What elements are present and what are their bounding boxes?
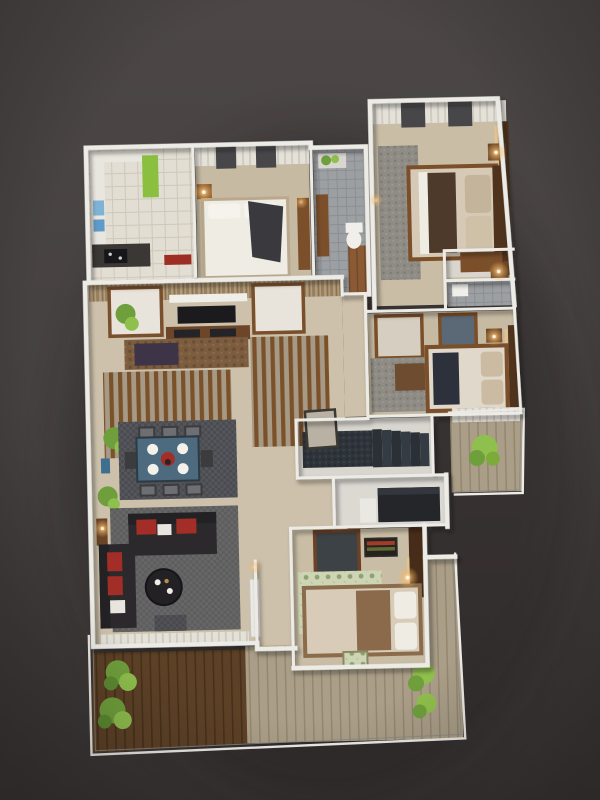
floorplan-render-stage (0, 0, 600, 800)
vignette-overlay (0, 0, 600, 800)
floorplan-3d-render (0, 0, 600, 800)
